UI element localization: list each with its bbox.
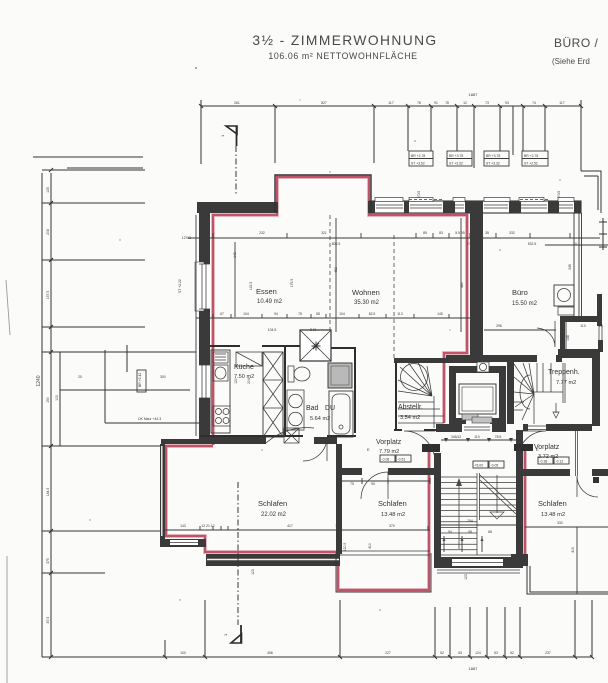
svg-text:3.54 m2: 3.54 m2	[400, 415, 420, 421]
svg-text:-0.05: -0.05	[491, 463, 499, 467]
svg-text:110: 110	[474, 435, 480, 439]
svg-text:74: 74	[532, 101, 536, 105]
svg-text:35: 35	[485, 231, 489, 235]
svg-text:827: 827	[321, 101, 327, 105]
svg-text:Schlafen: Schlafen	[258, 499, 287, 508]
svg-text:DU: DU	[325, 405, 335, 412]
svg-text:2'0/2: 2'0/2	[557, 191, 561, 198]
svg-text:BR +2.78: BR +2.78	[411, 154, 425, 158]
svg-text:22.02 m2: 22.02 m2	[261, 512, 287, 518]
svg-text:58: 58	[316, 312, 320, 316]
svg-text:ST +2.52: ST +2.52	[524, 162, 538, 166]
svg-text:375: 375	[46, 558, 50, 564]
svg-text:94: 94	[274, 312, 278, 316]
svg-text:Schlafen: Schlafen	[378, 499, 407, 508]
svg-text:-0.38: -0.38	[540, 459, 548, 463]
svg-text:73: 73	[485, 101, 489, 105]
svg-text:Küche: Küche	[234, 364, 254, 371]
svg-text:BR +3.78: BR +3.78	[449, 154, 463, 158]
svg-text:456: 456	[267, 651, 273, 655]
svg-text:67: 67	[220, 312, 224, 316]
svg-text:144.5: 144.5	[46, 488, 50, 497]
svg-text:25: 25	[599, 324, 603, 328]
svg-text:1240: 1240	[36, 375, 42, 386]
svg-text:321: 321	[321, 231, 327, 235]
svg-text:417: 417	[287, 524, 293, 528]
svg-text:+5.00: +5.00	[475, 463, 484, 467]
svg-text:3.72 m2: 3.72 m2	[538, 454, 558, 460]
svg-text:90: 90	[371, 482, 375, 486]
svg-text:BR +2.42: BR +2.42	[138, 373, 142, 387]
svg-text:123: 123	[251, 569, 255, 575]
svg-text:175.5: 175.5	[290, 279, 294, 288]
svg-text:298: 298	[496, 324, 502, 328]
svg-text:7.79 m2: 7.79 m2	[379, 449, 399, 455]
svg-text:106.06 m² NETTOWOHNFLÄCHE: 106.06 m² NETTOWOHNFLÄCHE	[268, 51, 417, 61]
svg-text:BR +2.78: BR +2.78	[524, 154, 538, 158]
svg-text:Wohnen: Wohnen	[352, 288, 380, 297]
svg-text:300: 300	[160, 375, 166, 379]
svg-text:208: 208	[46, 229, 50, 235]
svg-text:110: 110	[580, 324, 586, 328]
svg-text:232: 232	[259, 231, 265, 235]
svg-text:75: 75	[350, 482, 354, 486]
svg-text:113: 113	[397, 312, 403, 316]
svg-text:75: 75	[298, 312, 302, 316]
svg-text:ST +3.32: ST +3.32	[449, 162, 463, 166]
svg-text:98: 98	[468, 530, 472, 534]
svg-text:410: 410	[368, 543, 372, 549]
svg-text:D43: D43	[310, 328, 316, 332]
svg-text:Büro: Büro	[512, 288, 528, 297]
svg-text:93: 93	[505, 101, 509, 105]
svg-text:227: 227	[385, 651, 391, 655]
svg-text:148: 148	[566, 335, 570, 341]
svg-text:Bad: Bad	[306, 405, 319, 412]
svg-text:1887: 1887	[469, 92, 479, 97]
svg-text:120.5: 120.5	[343, 543, 347, 552]
svg-text:ST +3.52: ST +3.52	[411, 162, 425, 166]
svg-text:143: 143	[180, 524, 186, 528]
svg-text:12: 12	[463, 101, 467, 105]
svg-text:15.50 m2: 15.50 m2	[512, 301, 538, 307]
svg-text:52: 52	[510, 651, 514, 655]
svg-text:135: 135	[46, 187, 50, 193]
svg-text:OK Maur +43.3: OK Maur +43.3	[138, 417, 161, 421]
svg-text:88: 88	[488, 530, 492, 534]
svg-text:103: 103	[55, 395, 59, 401]
svg-text:254: 254	[467, 519, 473, 523]
svg-text:117: 117	[388, 101, 394, 105]
svg-text:Essen: Essen	[256, 287, 277, 296]
svg-text:90: 90	[448, 530, 452, 534]
svg-text:157.5: 157.5	[46, 291, 50, 300]
svg-text:-0.12: -0.12	[556, 459, 564, 463]
svg-text:13.48 m2: 13.48 m2	[541, 512, 565, 518]
svg-text:123: 123	[464, 574, 468, 580]
svg-text:100: 100	[180, 651, 186, 655]
svg-text:85: 85	[423, 231, 427, 235]
svg-text:104.5: 104.5	[268, 328, 277, 332]
svg-text:ST +3.32: ST +3.32	[486, 162, 500, 166]
svg-text:332: 332	[557, 521, 563, 525]
svg-text:91: 91	[434, 101, 438, 105]
svg-text:1887: 1887	[469, 666, 479, 671]
svg-text:10: 10	[573, 242, 577, 246]
svg-text:ST +2.22: ST +2.22	[178, 279, 182, 293]
svg-text:332: 332	[509, 231, 515, 235]
svg-text:7/16: 7/16	[467, 242, 474, 246]
svg-text:82.5: 82.5	[369, 312, 376, 316]
svg-text:5.64 m2: 5.64 m2	[310, 416, 330, 422]
svg-text:124: 124	[475, 651, 481, 655]
svg-text:415: 415	[571, 547, 575, 553]
svg-text:10.49 m2: 10.49 m2	[257, 299, 283, 305]
svg-text:53: 53	[494, 651, 498, 655]
svg-text:83: 83	[439, 231, 443, 235]
svg-text:7.50 m2: 7.50 m2	[234, 374, 254, 380]
svg-text:87.5: 87.5	[46, 617, 50, 624]
svg-text:-0.08: -0.08	[382, 457, 390, 461]
svg-text:52: 52	[440, 651, 444, 655]
svg-text:(Siehe Erd: (Siehe Erd	[552, 57, 590, 66]
svg-text:345: 345	[568, 264, 572, 270]
svg-text:115.5: 115.5	[249, 282, 253, 290]
svg-text:53: 53	[458, 651, 462, 655]
svg-text:532.5: 532.5	[528, 242, 537, 246]
svg-text:Abstellr.: Abstellr.	[398, 404, 423, 411]
svg-text:Vorplatz: Vorplatz	[376, 439, 402, 446]
svg-text:35.30 m2: 35.30 m2	[354, 300, 380, 306]
svg-text:3½ - ZIMMERWOHNUNG: 3½ - ZIMMERWOHNUNG	[252, 33, 437, 48]
svg-text:261: 261	[234, 101, 240, 105]
svg-text:78: 78	[445, 101, 449, 105]
svg-text:Treppenh.: Treppenh.	[548, 369, 580, 376]
svg-text:190: 190	[46, 397, 50, 403]
svg-text:-0.51: -0.51	[398, 457, 406, 461]
svg-text:104: 104	[243, 312, 249, 316]
svg-text:104: 104	[339, 312, 345, 316]
svg-text:237: 237	[545, 651, 551, 655]
svg-text:145: 145	[437, 312, 443, 316]
svg-text:BR +3.78: BR +3.78	[486, 154, 500, 158]
svg-text:E: E	[367, 447, 370, 452]
svg-text:78.5: 78.5	[495, 435, 502, 439]
svg-text:13.48 m2: 13.48 m2	[381, 512, 405, 518]
svg-text:5.5 95: 5.5 95	[455, 231, 465, 235]
svg-text:12'0/2: 12'0/2	[182, 236, 191, 240]
svg-text:370: 370	[389, 524, 395, 528]
svg-text:117: 117	[559, 101, 565, 105]
svg-text:BÜRO /: BÜRO /	[554, 36, 599, 50]
svg-text:2'0/2: 2'0/2	[417, 191, 421, 198]
svg-text:7.77 m2: 7.77 m2	[556, 380, 576, 386]
svg-text:345/12: 345/12	[451, 435, 461, 439]
svg-text:10: 10	[335, 524, 339, 528]
svg-text:78: 78	[417, 101, 421, 105]
svg-text:Schlafen: Schlafen	[538, 499, 567, 508]
svg-text:20: 20	[78, 375, 82, 379]
svg-text:Vorplatz: Vorplatz	[534, 444, 560, 451]
